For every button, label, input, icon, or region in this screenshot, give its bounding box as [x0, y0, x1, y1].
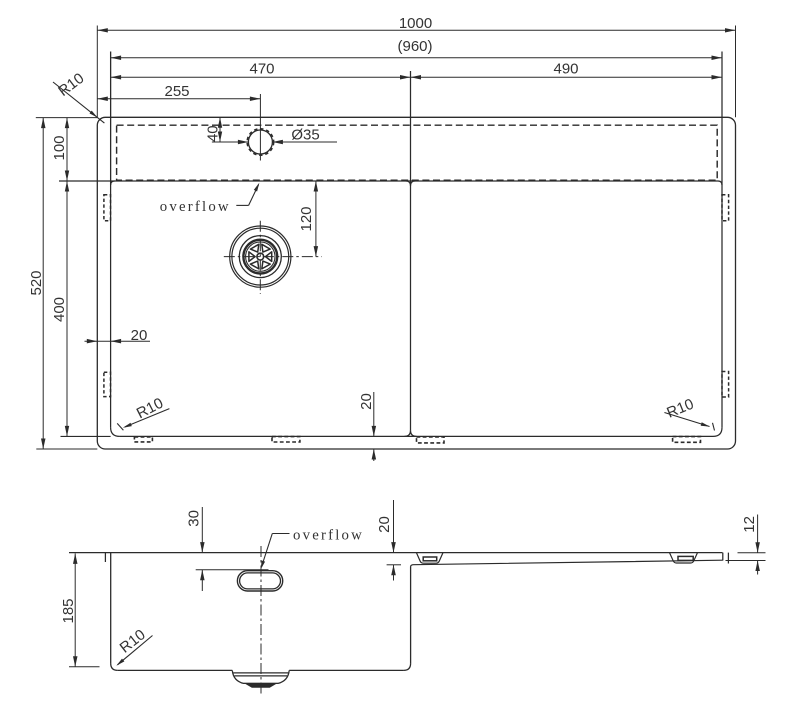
svg-text:100: 100 [51, 135, 68, 160]
svg-text:Ø35: Ø35 [291, 126, 319, 143]
svg-text:12: 12 [741, 516, 758, 533]
svg-text:490: 490 [553, 60, 578, 77]
svg-text:(960): (960) [397, 38, 432, 55]
svg-text:1000: 1000 [399, 15, 432, 32]
svg-text:30: 30 [186, 510, 203, 527]
svg-text:20: 20 [376, 516, 393, 533]
svg-text:overflow: overflow [293, 527, 364, 543]
svg-text:20: 20 [358, 393, 375, 410]
svg-text:20: 20 [131, 327, 148, 344]
svg-text:overflow: overflow [160, 199, 231, 215]
svg-text:520: 520 [28, 270, 45, 295]
svg-text:470: 470 [249, 60, 274, 77]
svg-text:255: 255 [164, 83, 189, 100]
svg-text:185: 185 [60, 598, 77, 623]
svg-text:400: 400 [51, 297, 68, 322]
svg-text:40: 40 [205, 125, 222, 142]
svg-text:120: 120 [298, 206, 315, 231]
